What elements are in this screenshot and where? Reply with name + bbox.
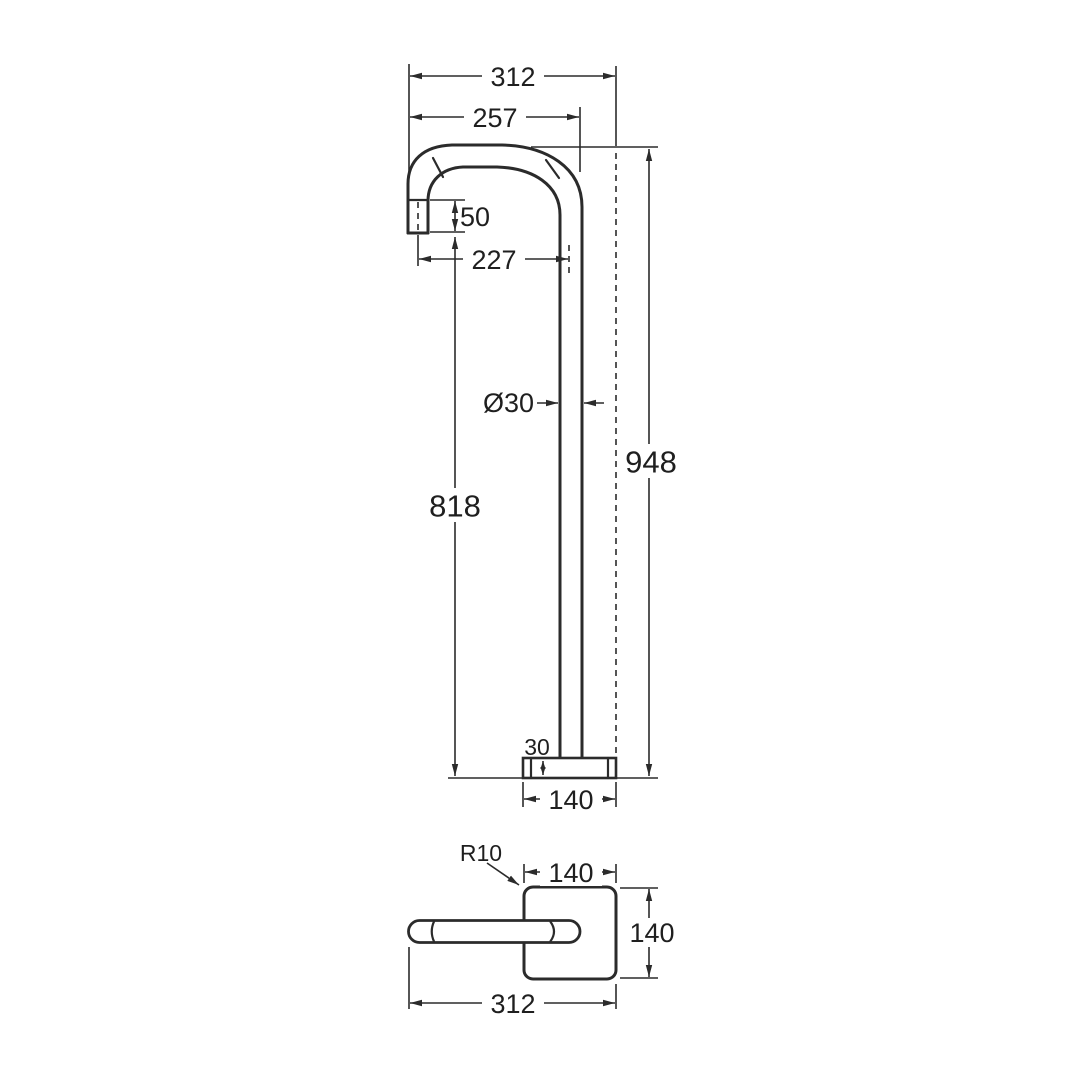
dim-corner-radius: R10: [460, 840, 519, 885]
dim-plan-base-width-label: 140: [548, 858, 593, 888]
plan-view: R10 140 140 312: [409, 840, 684, 1019]
dim-overall-height: 948: [620, 149, 680, 776]
bend-joint-line-right: [546, 160, 559, 178]
dim-outlet-drop: 50: [430, 200, 490, 232]
dim-outlet-height: 818: [425, 237, 485, 776]
dim-width-to-spout-outer: 257: [410, 103, 579, 133]
dim-base-width-label: 140: [548, 785, 593, 815]
dim-width-to-spout-outer-label: 257: [472, 103, 517, 133]
dim-outlet-to-pipe-centre: 227: [419, 245, 568, 275]
dim-outlet-height-label: 818: [429, 489, 481, 524]
technical-drawing-canvas: 312 257 50 227 Ø30: [0, 0, 1080, 1080]
dim-corner-radius-label: R10: [460, 840, 502, 866]
dim-outlet-to-pipe-centre-label: 227: [471, 245, 516, 275]
dim-pipe-diameter: Ø30: [483, 388, 604, 418]
dim-outlet-drop-label: 50: [460, 202, 490, 232]
dim-plan-base-width: 140: [524, 858, 616, 888]
dim-overall-width-label: 312: [490, 62, 535, 92]
dim-base-thickness-label: 30: [524, 734, 550, 760]
elevation-view: 312 257 50 227 Ø30: [408, 62, 680, 815]
dim-base-width: 140: [523, 782, 616, 815]
base-plate: [523, 758, 616, 778]
dim-plan-base-depth-label: 140: [629, 918, 674, 948]
dim-plan-overall-width-label: 312: [490, 989, 535, 1019]
dim-overall-width: 312: [410, 62, 615, 92]
spout-outline-outer: [408, 145, 582, 758]
dim-overall-height-label: 948: [625, 445, 677, 480]
bend-joint-line-left: [433, 158, 443, 177]
dim-pipe-diameter-label: Ø30: [483, 388, 534, 418]
dim-plan-base-depth: 140: [620, 888, 683, 978]
